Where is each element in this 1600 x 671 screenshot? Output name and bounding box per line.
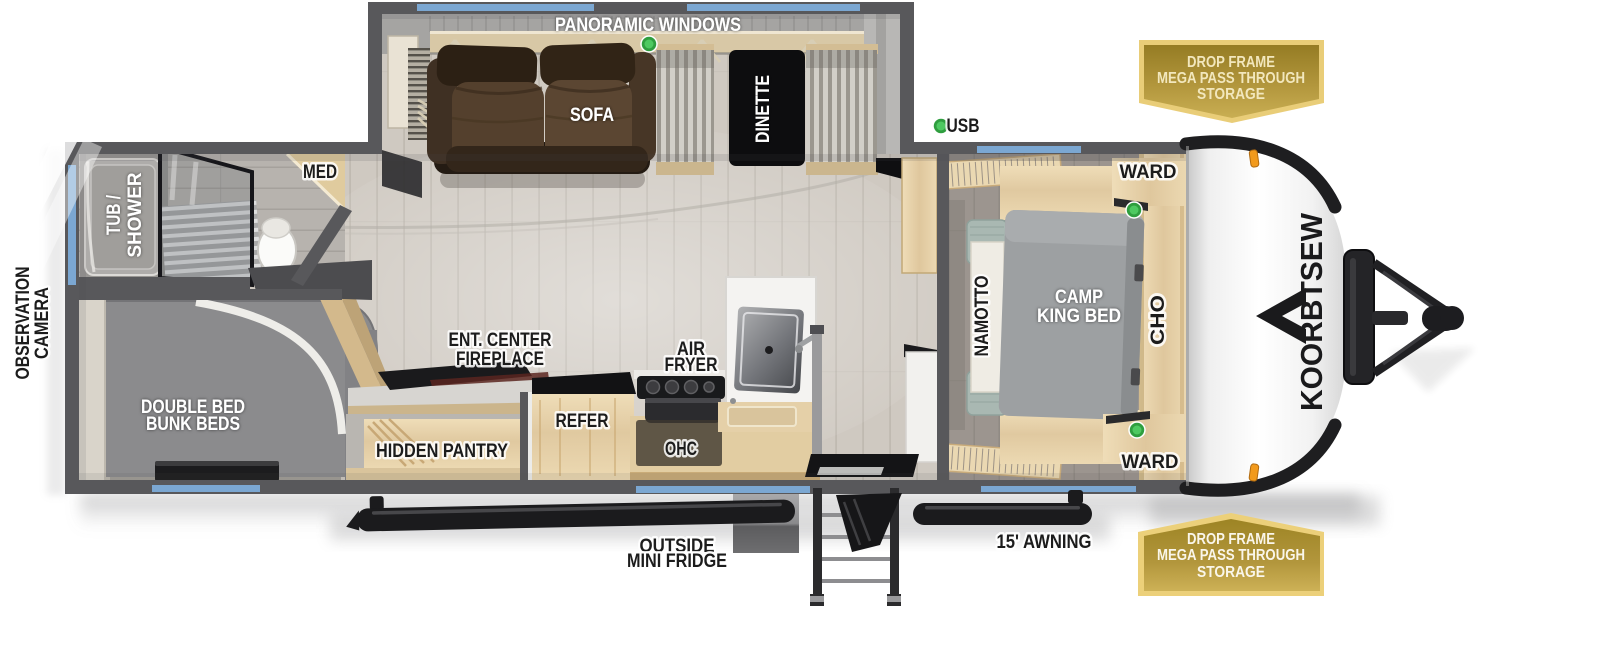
svg-text:MEGA PASS THROUGH: MEGA PASS THROUGH: [1157, 547, 1305, 564]
svg-text:PANORAMIC WINDOWS: PANORAMIC WINDOWS: [555, 15, 741, 36]
svg-text:WARD: WARD: [1122, 452, 1179, 473]
svg-text:FRYER: FRYER: [665, 355, 718, 376]
svg-text:BUNK BEDS: BUNK BEDS: [146, 414, 240, 435]
svg-text:CHO: CHO: [1148, 295, 1169, 345]
svg-text:WARD: WARD: [1120, 162, 1177, 183]
svg-text:MINI FRIDGE: MINI FRIDGE: [627, 551, 727, 572]
svg-text:FIREPLACE: FIREPLACE: [456, 349, 544, 370]
svg-text:SOFA: SOFA: [570, 105, 614, 126]
svg-text:MED: MED: [303, 162, 337, 183]
svg-text:NAMOTTO: NAMOTTO: [972, 276, 993, 357]
svg-text:MEGA PASS THROUGH: MEGA PASS THROUGH: [1157, 70, 1305, 87]
svg-text:KOORBTSEW: KOORBTSEW: [1294, 212, 1329, 411]
svg-text:DINETTE: DINETTE: [753, 75, 774, 143]
svg-text:STORAGE: STORAGE: [1197, 86, 1265, 103]
svg-text:USB: USB: [947, 116, 980, 137]
svg-text:DROP FRAME: DROP FRAME: [1187, 531, 1275, 548]
svg-text:HIDDEN PANTRY: HIDDEN PANTRY: [376, 441, 508, 462]
svg-text:DROP FRAME: DROP FRAME: [1187, 54, 1275, 71]
svg-text:KING BED: KING BED: [1037, 306, 1121, 327]
svg-text:ENT. CENTER: ENT. CENTER: [449, 330, 552, 351]
svg-text:CAMP: CAMP: [1055, 287, 1103, 308]
svg-text:STORAGE: STORAGE: [1197, 564, 1265, 581]
svg-text:15' AWNING: 15' AWNING: [997, 532, 1092, 553]
svg-text:REFER: REFER: [556, 411, 609, 432]
svg-text:OHC: OHC: [665, 439, 697, 460]
